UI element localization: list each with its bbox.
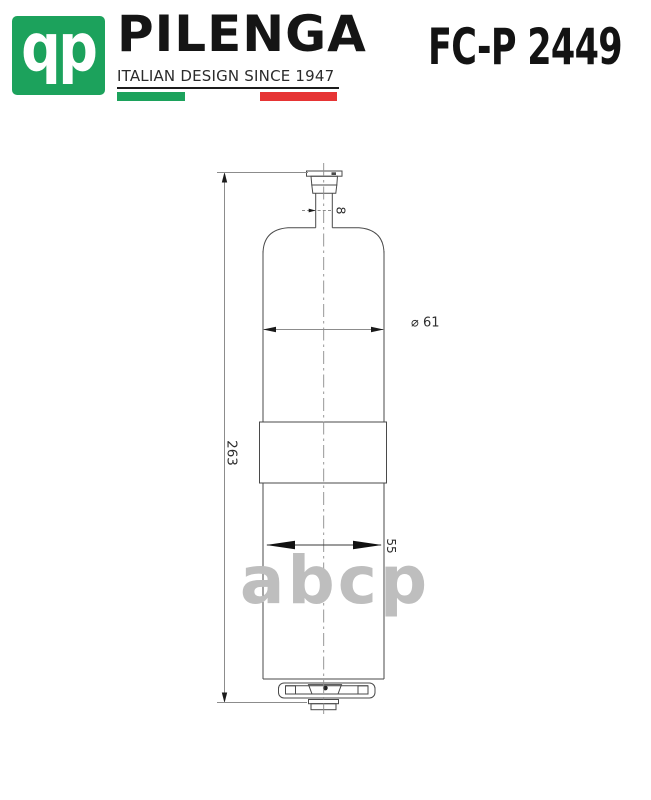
dimension-inlet-label: 8 bbox=[334, 207, 349, 215]
dimension-diameter-label: ⌀ 61 bbox=[411, 316, 440, 331]
bottom-bracket bbox=[279, 683, 376, 698]
page: qp PILENGA ITALIAN DESIGN SINCE 1947 FC-… bbox=[0, 0, 651, 800]
top-fitting bbox=[307, 171, 343, 228]
watermark-text: abcp bbox=[240, 542, 430, 619]
dimension-height-label: 263 bbox=[224, 440, 240, 466]
technical-drawing: 263 ⌀ 61 55 8 abc bbox=[0, 0, 651, 800]
mounting-band bbox=[260, 422, 387, 483]
dimension-diameter: ⌀ 61 bbox=[263, 316, 440, 333]
dimension-inlet: 8 bbox=[302, 207, 349, 215]
